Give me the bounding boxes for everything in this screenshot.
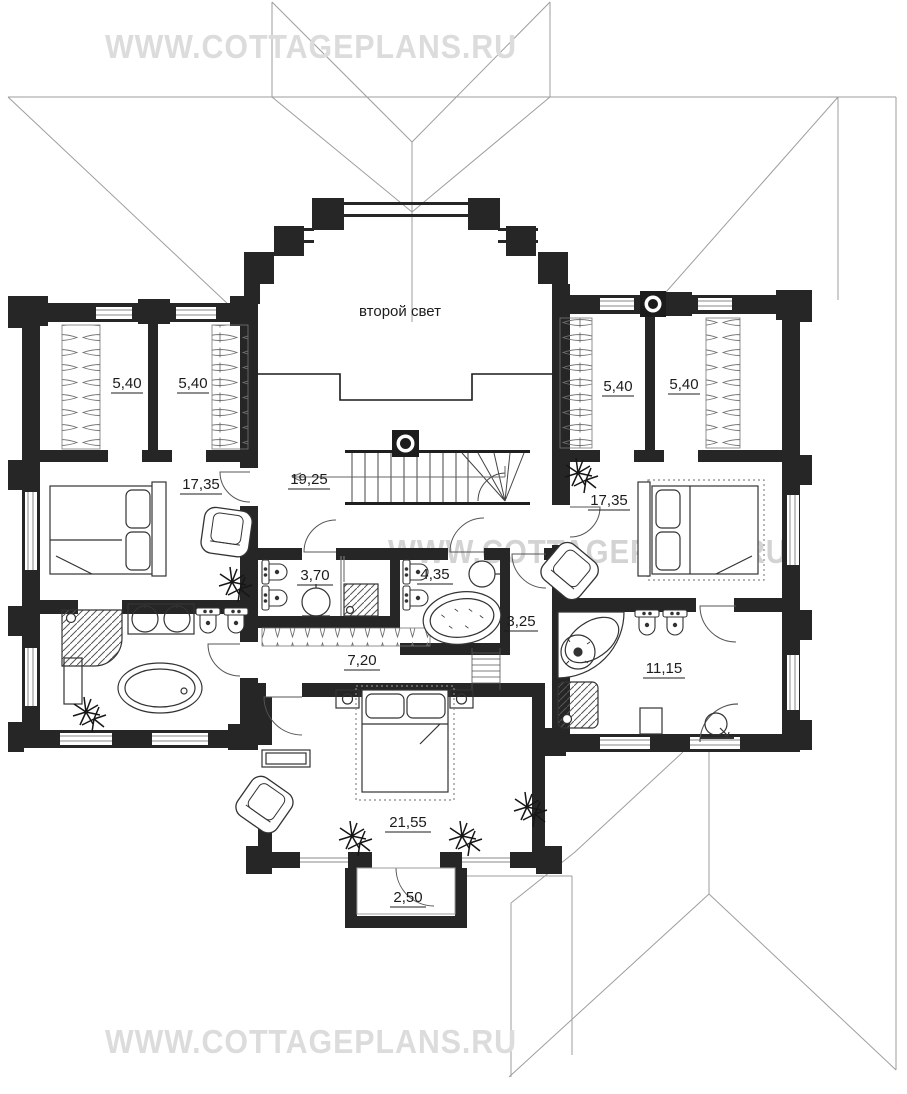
stand: [640, 708, 662, 734]
floor-plan-page: WWW.COTTAGEPLANS.RU WWW.COTTAGEPLANS.RU …: [0, 0, 907, 1094]
window: [787, 655, 799, 710]
tv-icon: [262, 750, 310, 767]
watermark-top: WWW.COTTAGEPLANS.RU: [105, 28, 517, 65]
spa-tub-icon: [557, 608, 627, 678]
window: [600, 298, 634, 310]
door-arc: [304, 520, 336, 552]
toilet-icon: [635, 610, 659, 635]
door-arc: [208, 644, 240, 676]
bed-icon: [638, 480, 764, 580]
door-arc: [700, 606, 736, 642]
room-label-closet-right-b: 5,40: [669, 376, 698, 393]
plant-icon: [339, 821, 372, 856]
room-label-hall: 19,25: [290, 471, 328, 488]
bed-icon: [50, 482, 166, 576]
shower-icon: [341, 556, 378, 616]
chimney-icon: [640, 291, 666, 317]
room-label-bath-small: 3,70: [300, 567, 329, 584]
window: [300, 855, 348, 866]
bed-icon: [356, 686, 454, 800]
window: [25, 492, 37, 570]
room-label-bedroom-left: 17,35: [182, 476, 220, 493]
floor-plan: WWW.COTTAGEPLANS.RU WWW.COTTAGEPLANS.RU …: [0, 0, 907, 1094]
room-label-corridor: 7,20: [347, 652, 376, 669]
bathtub-icon: [420, 587, 504, 649]
window: [600, 737, 650, 749]
window: [152, 733, 208, 745]
window: [60, 733, 112, 745]
room-label-closet-left-a: 5,40: [112, 375, 141, 392]
window: [176, 307, 216, 319]
watermark-bottom: WWW.COTTAGEPLANS.RU: [105, 1023, 517, 1060]
room-label-bedroom-right: 17,35: [590, 492, 628, 509]
room-label-bath-large: 4,35: [420, 566, 449, 583]
toilet-icon: [403, 586, 428, 610]
door-arc: [220, 472, 250, 502]
toilet-icon: [663, 610, 687, 635]
shower-icon: [558, 682, 598, 728]
toilet-icon: [196, 608, 220, 633]
armchair-icon: [232, 772, 298, 837]
furniture: [50, 458, 764, 914]
wardrobe-hatch: [706, 318, 740, 448]
room-label-bathroom-right: 11,15: [646, 660, 682, 677]
window: [698, 298, 732, 310]
wardrobe-hatch: [212, 325, 248, 449]
room-label-corridor-vertical: 3,25: [506, 613, 535, 630]
toilet-icon: [262, 586, 287, 610]
second-light-label: второй свет: [359, 303, 441, 320]
window: [787, 495, 799, 565]
window: [462, 855, 510, 866]
room-label-balcony: 2,50: [393, 889, 422, 906]
window: [25, 648, 37, 706]
chimney-icon: [392, 430, 419, 457]
hall-walls: [244, 198, 568, 304]
bathtub-icon: [118, 663, 202, 713]
plant-icon: [73, 697, 106, 732]
void-boundary: [258, 374, 552, 400]
hanger-rail: [262, 628, 430, 646]
room-label-closet-right-a: 5,40: [603, 378, 632, 395]
window: [96, 307, 132, 319]
armchair-icon: [200, 506, 254, 558]
wardrobe-hatch: [62, 325, 100, 449]
room-label-closet-left-b: 5,40: [178, 375, 207, 392]
wardrobe-hatch: [560, 318, 592, 448]
plant-icon: [449, 821, 482, 856]
toilet-icon: [262, 560, 287, 584]
room-label-bedroom-master: 21,55: [389, 814, 427, 831]
sink-icon: [302, 584, 330, 616]
